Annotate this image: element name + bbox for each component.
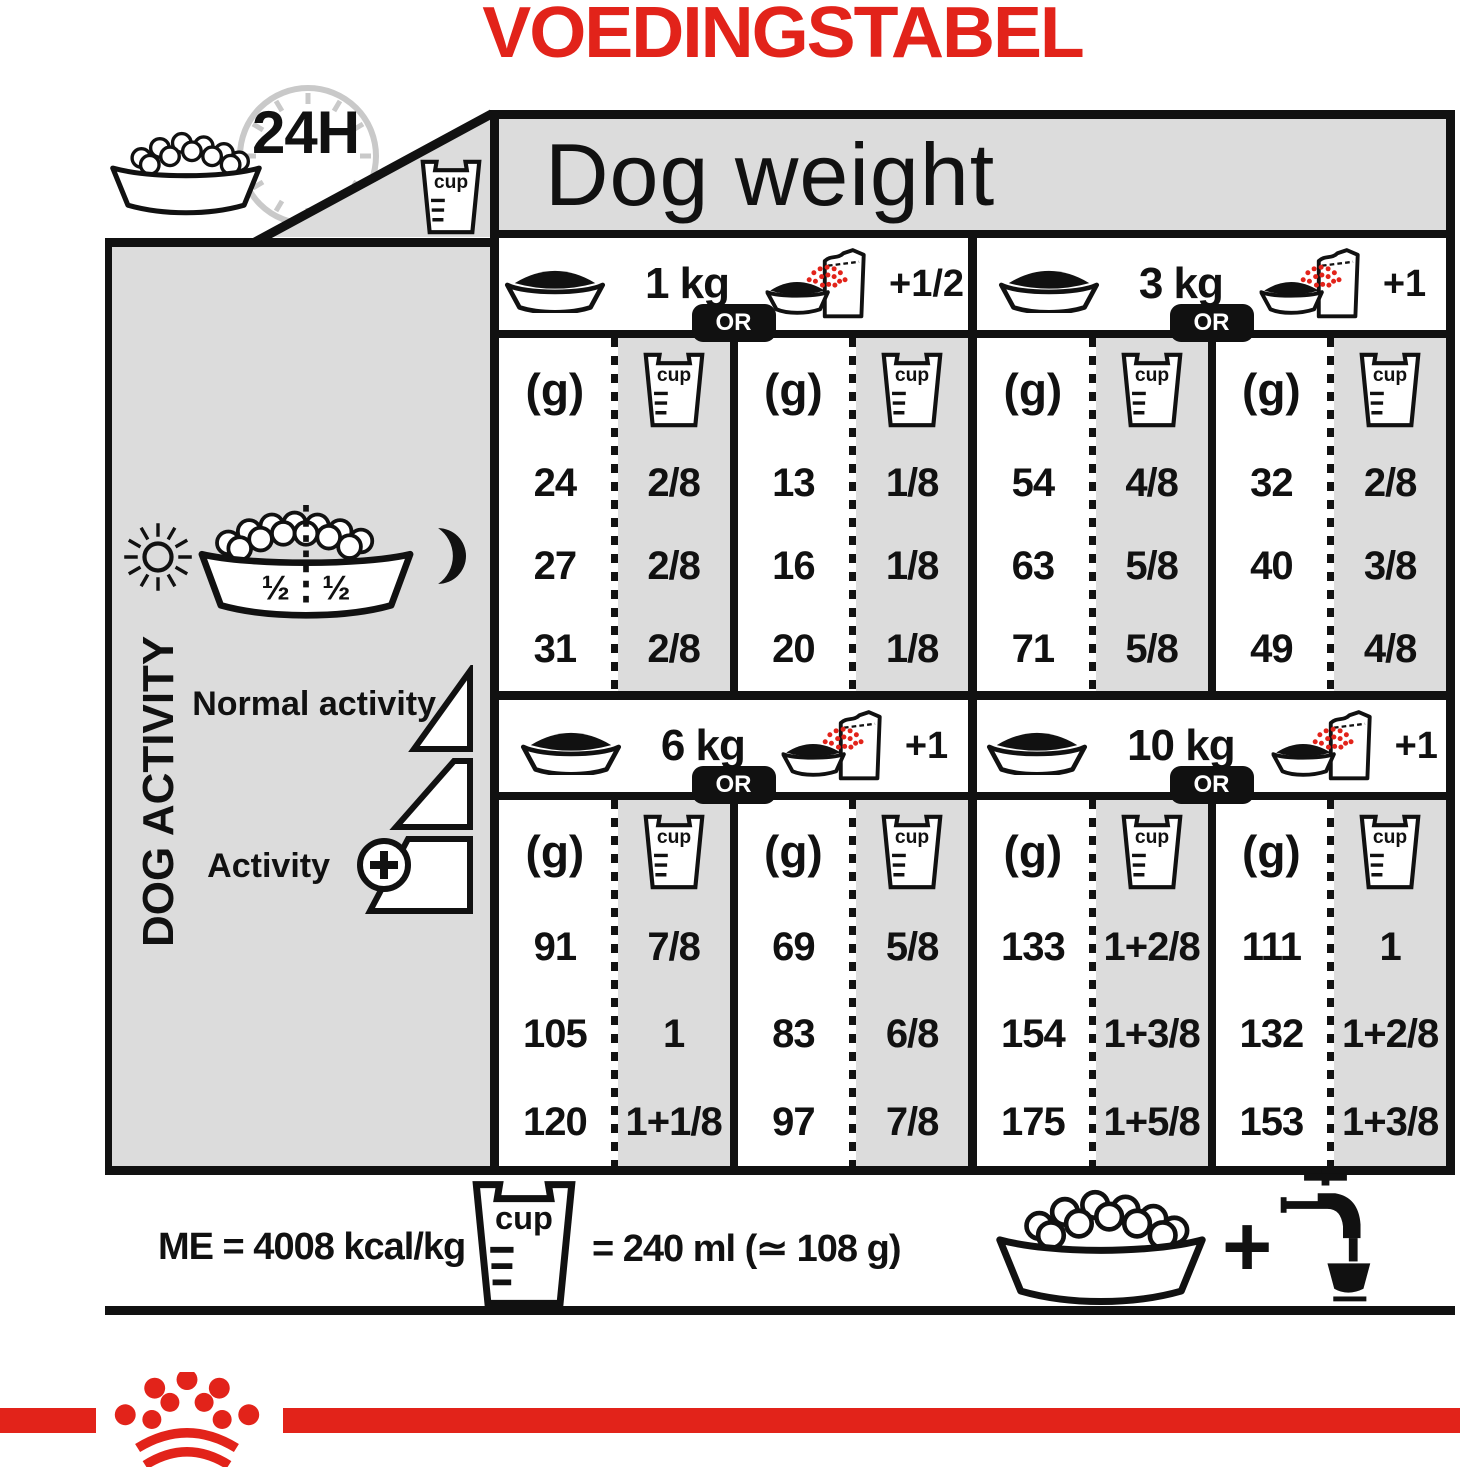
solid-divider [730, 800, 738, 1166]
solid-divider [1208, 338, 1216, 691]
half-left-label: ½ [261, 570, 289, 608]
cup-header [856, 800, 968, 904]
quadrant-6kg-columns: (g) 91 105 120 7/8 1 1+1/8 (g) 69 83 97 [499, 800, 968, 1166]
crown-logo [107, 1372, 267, 1467]
grid-divider [968, 238, 977, 691]
cup-header [618, 800, 730, 904]
dog-activity-sidebar: ½ ½ DOG ACTIVITY Normal activity Activit… [105, 238, 490, 1175]
cup-header [618, 338, 730, 442]
dry-cup-column: 4/8 5/8 5/8 [1096, 338, 1208, 691]
moon-icon [422, 525, 466, 587]
cell: 111 [1216, 904, 1328, 991]
mix-grams-column: (g) 13 16 20 [738, 338, 850, 691]
cup-icon [1121, 351, 1183, 429]
half-half-bowl-icon: ½ ½ [192, 505, 420, 647]
quadrant-3kg-header: 3 kg +1 OR [977, 238, 1446, 338]
cell: 1+2/8 [1096, 904, 1208, 991]
kibble-bowl-icon [982, 1184, 1220, 1312]
cell: 2/8 [618, 608, 730, 691]
cell: 132 [1216, 991, 1328, 1078]
cell: 83 [738, 991, 850, 1078]
dry-bowl-icon [503, 255, 607, 313]
cell: 153 [1216, 1079, 1328, 1166]
cell: 16 [738, 525, 850, 608]
cell: 154 [977, 991, 1089, 1078]
dry-bowl-icon [997, 255, 1101, 313]
cell: 1+2/8 [1334, 991, 1446, 1078]
cell: 5/8 [1096, 608, 1208, 691]
mix-cup-column: 2/8 3/8 4/8 [1334, 338, 1446, 691]
cell: 133 [977, 904, 1089, 991]
grams-header: (g) [738, 800, 850, 904]
cell: 7/8 [856, 1079, 968, 1166]
solid-divider [730, 338, 738, 691]
dotted-divider [1327, 338, 1334, 691]
bowl-pouch-icon [1259, 247, 1377, 321]
cell: 4/8 [1096, 442, 1208, 525]
dotted-divider [611, 800, 618, 1166]
dog-weight-header: Dog weight [490, 110, 1455, 239]
cup-equivalence-label: = 240 ml (≃ 108 g) [592, 1226, 901, 1271]
cell: 32 [1216, 442, 1328, 525]
cell: 2/8 [618, 525, 730, 608]
grid-divider [968, 700, 977, 1166]
wet-add-label: +1 [1383, 263, 1426, 306]
grams-header: (g) [977, 800, 1089, 904]
plus-sign: + [1222, 1198, 1272, 1297]
dotted-divider [611, 338, 618, 691]
or-badge: OR [692, 766, 776, 804]
cell: 1/8 [856, 525, 968, 608]
sun-icon [120, 519, 196, 595]
cup-icon [1359, 351, 1421, 429]
or-badge: OR [692, 304, 776, 342]
dry-grams-column: (g) 133 154 175 [977, 800, 1089, 1166]
cell: 3/8 [1334, 525, 1446, 608]
dotted-divider [849, 800, 856, 1166]
dotted-divider [1089, 800, 1096, 1166]
dry-grams-column: (g) 24 27 31 [499, 338, 611, 691]
red-line [0, 1408, 96, 1433]
cup-icon [643, 351, 705, 429]
cell: 2/8 [618, 442, 730, 525]
quadrant-1kg-header: 1 kg +1/2 OR [499, 238, 968, 338]
cell: 27 [499, 525, 611, 608]
cell: 97 [738, 1079, 850, 1166]
cell: 6/8 [856, 991, 968, 1078]
grams-header: (g) [977, 338, 1089, 442]
cup-header [1096, 338, 1208, 442]
weight-label: 1 kg [645, 259, 729, 309]
cell: 31 [499, 608, 611, 691]
grid-divider [499, 691, 968, 700]
cell: 49 [1216, 608, 1328, 691]
grams-header: (g) [738, 338, 850, 442]
grid-divider [968, 691, 977, 700]
cell: 175 [977, 1079, 1089, 1166]
bowl-pouch-icon [1271, 709, 1389, 783]
cell: 69 [738, 904, 850, 991]
water-tap-icon [1278, 1168, 1372, 1314]
half-right-label: ½ [322, 570, 350, 608]
cell: 1+3/8 [1334, 1079, 1446, 1166]
page-title: VOEDINGSTABEL [91, 0, 1460, 74]
me-kcal-label: ME = 4008 kcal/kg [158, 1226, 465, 1269]
cell: 63 [977, 525, 1089, 608]
dotted-divider [1089, 338, 1096, 691]
solid-divider [1208, 800, 1216, 1166]
cup-icon [420, 158, 482, 236]
cell: 91 [499, 904, 611, 991]
dotted-divider [849, 338, 856, 691]
mix-grams-column: (g) 32 40 49 [1216, 338, 1328, 691]
cell: 20 [738, 608, 850, 691]
wet-add-label: +1/2 [889, 263, 964, 306]
cup-header [856, 338, 968, 442]
cell: 1+3/8 [1096, 991, 1208, 1078]
activity-level-icon [350, 665, 478, 917]
dry-bowl-icon [985, 717, 1089, 775]
dry-grams-column: (g) 91 105 120 [499, 800, 611, 1166]
cell: 1 [618, 991, 730, 1078]
cup-icon [468, 1180, 580, 1308]
grams-header: (g) [499, 800, 611, 904]
mix-cup-column: 1 1+2/8 1+3/8 [1334, 800, 1446, 1166]
dry-bowl-icon [519, 717, 623, 775]
cell: 1/8 [856, 608, 968, 691]
cell: 24 [499, 442, 611, 525]
cell: 7/8 [618, 904, 730, 991]
mix-grams-column: (g) 111 132 153 [1216, 800, 1328, 1166]
cell: 5/8 [856, 904, 968, 991]
red-line [283, 1408, 1460, 1433]
quadrant-10kg-header: 10 kg +1 OR [977, 700, 1446, 800]
cell: 40 [1216, 525, 1328, 608]
cell: 1 [1334, 904, 1446, 991]
cup-icon [643, 813, 705, 891]
dry-cup-column: 1+2/8 1+3/8 1+5/8 [1096, 800, 1208, 1166]
feeding-table: 1 kg +1/2 OR (g) 24 27 31 2/8 2/8 2/8 [490, 238, 1455, 1175]
cell: 1+5/8 [1096, 1079, 1208, 1166]
cup-header [1334, 338, 1446, 442]
mix-cup-column: 1/8 1/8 1/8 [856, 338, 968, 691]
grid-divider [977, 691, 1446, 700]
weight-label: 6 kg [661, 721, 745, 771]
weight-label: 3 kg [1139, 259, 1223, 309]
cup-icon [881, 813, 943, 891]
footer-divider [105, 1306, 1455, 1315]
wet-add-label: +1 [905, 725, 948, 768]
activity-label: Activity [162, 847, 330, 886]
cell: 5/8 [1096, 525, 1208, 608]
grams-header: (g) [1216, 800, 1328, 904]
cup-header [1334, 800, 1446, 904]
cell: 13 [738, 442, 850, 525]
bowl-pouch-icon [781, 709, 899, 783]
cell: 105 [499, 991, 611, 1078]
mix-cup-column: 5/8 6/8 7/8 [856, 800, 968, 1166]
cup-header [1096, 800, 1208, 904]
quadrant-1kg-columns: (g) 24 27 31 2/8 2/8 2/8 (g) 13 16 20 [499, 338, 968, 691]
quadrant-1kg: 1 kg +1/2 OR (g) 24 27 31 2/8 2/8 2/8 [499, 238, 968, 691]
or-badge: OR [1170, 766, 1254, 804]
cell: 4/8 [1334, 608, 1446, 691]
wet-add-label: +1 [1395, 725, 1438, 768]
cup-icon [1121, 813, 1183, 891]
dry-grams-column: (g) 54 63 71 [977, 338, 1089, 691]
quadrant-6kg-header: 6 kg +1 OR [499, 700, 968, 800]
dry-cup-column: 2/8 2/8 2/8 [618, 338, 730, 691]
cup-icon [881, 351, 943, 429]
mix-grams-column: (g) 69 83 97 [738, 800, 850, 1166]
quadrant-10kg-columns: (g) 133 154 175 1+2/8 1+3/8 1+5/8 (g) 11… [977, 800, 1446, 1166]
or-badge: OR [1170, 304, 1254, 342]
dry-cup-column: 7/8 1 1+1/8 [618, 800, 730, 1166]
grams-header: (g) [499, 338, 611, 442]
cell: 1+1/8 [618, 1079, 730, 1166]
dog-weight-label: Dog weight [499, 124, 995, 226]
bowl-pouch-icon [765, 247, 883, 321]
cell: 71 [977, 608, 1089, 691]
grams-header: (g) [1216, 338, 1328, 442]
cell: 120 [499, 1079, 611, 1166]
quadrant-3kg-columns: (g) 54 63 71 4/8 5/8 5/8 (g) 32 40 49 [977, 338, 1446, 691]
dotted-divider [1327, 800, 1334, 1166]
cup-icon [1359, 813, 1421, 891]
cell: 2/8 [1334, 442, 1446, 525]
quadrant-6kg: 6 kg +1 OR (g) 91 105 120 7/8 1 1+1/8 [499, 700, 968, 1166]
quadrant-10kg: 10 kg +1 OR (g) 133 154 175 1+2/8 1+3/8 … [977, 700, 1446, 1166]
cell: 54 [977, 442, 1089, 525]
weight-label: 10 kg [1127, 721, 1235, 771]
quadrant-3kg: 3 kg +1 OR (g) 54 63 71 4/8 5/8 5/8 [977, 238, 1446, 691]
cell: 1/8 [856, 442, 968, 525]
